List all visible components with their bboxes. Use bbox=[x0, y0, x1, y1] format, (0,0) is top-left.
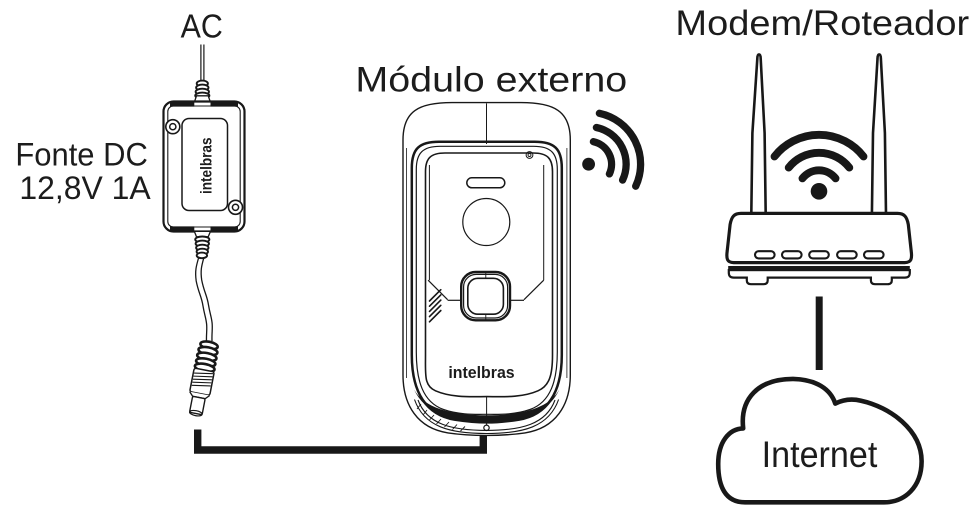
svg-text:Modem/Roteador: Modem/Roteador bbox=[675, 4, 969, 43]
svg-text:12,8V 1A: 12,8V 1A bbox=[19, 170, 151, 206]
svg-text:AC: AC bbox=[181, 8, 223, 45]
svg-text:intelbras: intelbras bbox=[199, 138, 216, 195]
svg-text:Fonte DC: Fonte DC bbox=[15, 137, 148, 173]
svg-text:Módulo externo: Módulo externo bbox=[355, 61, 627, 100]
svg-text:intelbras: intelbras bbox=[448, 363, 514, 382]
svg-text:Internet: Internet bbox=[762, 434, 878, 475]
